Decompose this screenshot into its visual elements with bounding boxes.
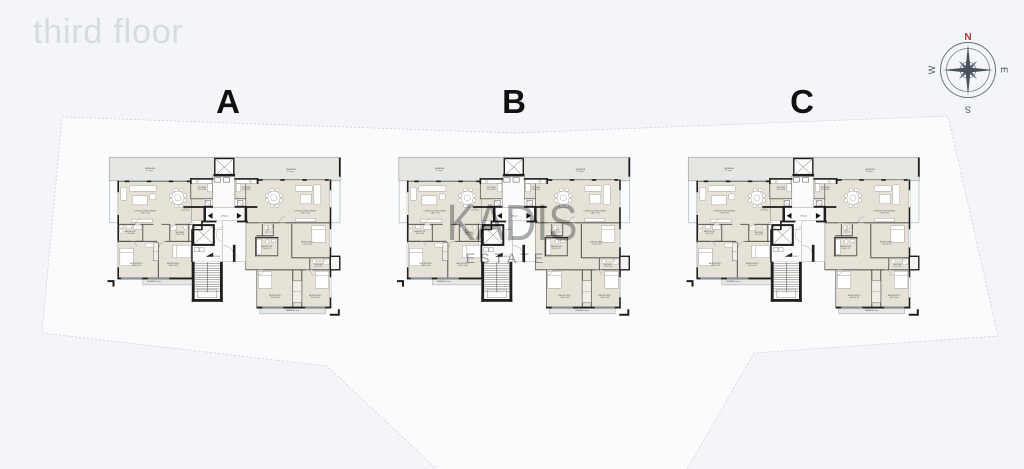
- svg-text:W: W: [927, 65, 937, 74]
- svg-text:KITCHEN3.05+2.60: KITCHEN3.05+2.60: [242, 187, 251, 191]
- svg-text:BLOCK C: BLOCK C: [789, 256, 799, 258]
- svg-text:SHOWER1.05+2.00: SHOWER1.05+2.00: [176, 232, 185, 236]
- svg-text:N: N: [964, 32, 971, 43]
- svg-text:KADIS: KADIS: [447, 194, 578, 251]
- svg-text:KITCHEN3.05+2.60: KITCHEN3.05+2.60: [532, 187, 541, 191]
- svg-text:VERANDA 7 sq.m.: VERANDA 7 sq.m.: [437, 280, 452, 283]
- svg-text:E: E: [999, 67, 1009, 73]
- svg-text:C: C: [790, 83, 814, 120]
- svg-text:VERANDA 7 sq.m.: VERANDA 7 sq.m.: [286, 309, 301, 312]
- svg-text:B: B: [502, 83, 526, 120]
- svg-text:BLOCK A: BLOCK A: [211, 255, 221, 258]
- svg-text:KITCHEN3.05+2.60: KITCHEN3.05+2.60: [487, 187, 496, 191]
- svg-text:BATHROOM2.00+1.75: BATHROOM2.00+1.75: [840, 245, 851, 250]
- svg-text:third floor: third floor: [33, 13, 184, 51]
- svg-text:A: A: [216, 83, 240, 120]
- svg-text:ESTATE: ESTATE: [466, 250, 548, 266]
- svg-text:BATHROOM2.00+1.75: BATHROOM2.00+1.75: [261, 245, 272, 250]
- svg-text:SHOWER2.05+1.05: SHOWER2.05+1.05: [893, 264, 902, 268]
- svg-text:BATHROOM1.40+2.00: BATHROOM1.40+2.00: [125, 230, 136, 235]
- svg-text:29sq.m: 29sq.m: [221, 216, 228, 218]
- svg-text:BATHROOM1.40+2.00: BATHROOM1.40+2.00: [414, 230, 425, 235]
- svg-text:KITCHEN3.05+2.60: KITCHEN3.05+2.60: [198, 187, 207, 191]
- svg-text:VERANDA 7 sq.m.: VERANDA 7 sq.m.: [865, 309, 880, 312]
- svg-text:VERANDA 7 sq.m.: VERANDA 7 sq.m.: [147, 280, 162, 283]
- svg-text:SHOWER2.05+1.05: SHOWER2.05+1.05: [314, 264, 323, 268]
- svg-text:VERANDA 7 sq.m.: VERANDA 7 sq.m.: [575, 309, 590, 312]
- svg-text:SHOWER1.05+2.00: SHOWER1.05+2.00: [755, 232, 764, 236]
- svg-text:KITCHEN3.05+2.60: KITCHEN3.05+2.60: [777, 187, 786, 191]
- svg-text:VERANDA 7 sq.m.: VERANDA 7 sq.m.: [726, 280, 741, 283]
- svg-text:29sq.m: 29sq.m: [800, 216, 807, 218]
- svg-text:SHOWER2.05+1.05: SHOWER2.05+1.05: [604, 264, 613, 268]
- svg-text:BATHROOM1.40+2.00: BATHROOM1.40+2.00: [704, 230, 715, 235]
- svg-text:KITCHEN3.05+2.60: KITCHEN3.05+2.60: [821, 187, 830, 191]
- svg-text:S: S: [965, 105, 971, 115]
